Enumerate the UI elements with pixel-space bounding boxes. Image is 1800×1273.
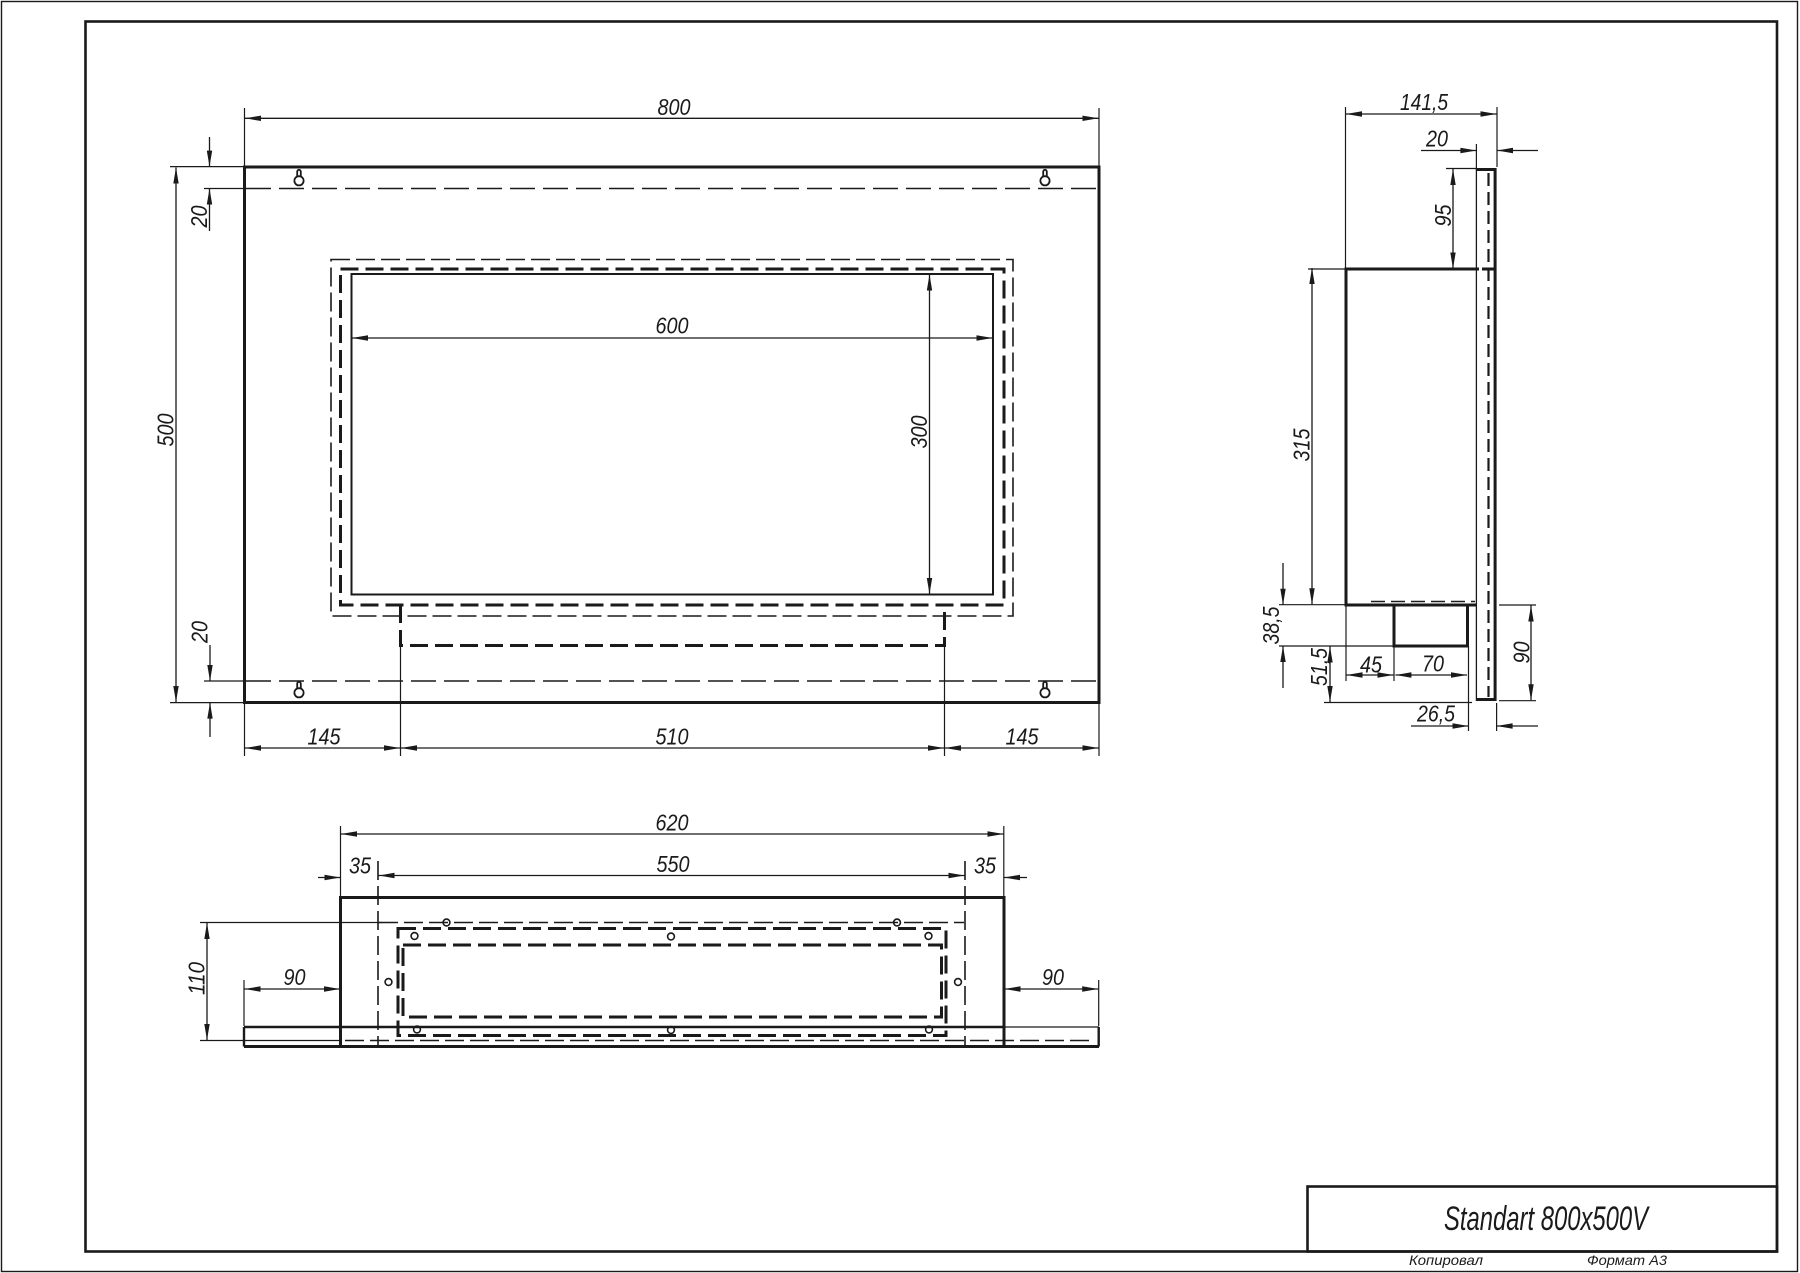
- svg-text:70: 70: [1422, 651, 1444, 677]
- svg-text:95: 95: [1430, 204, 1456, 226]
- svg-text:38,5: 38,5: [1258, 606, 1284, 644]
- svg-text:Standart 800x500V: Standart 800x500V: [1444, 1200, 1650, 1238]
- svg-text:20: 20: [1425, 126, 1448, 152]
- svg-text:500: 500: [153, 413, 179, 446]
- svg-text:90: 90: [284, 964, 306, 990]
- svg-text:510: 510: [656, 724, 689, 750]
- svg-text:51,5: 51,5: [1306, 648, 1332, 686]
- svg-text:145: 145: [1006, 724, 1039, 750]
- svg-text:35: 35: [349, 853, 371, 879]
- svg-text:145: 145: [308, 724, 341, 750]
- svg-text:90: 90: [1042, 964, 1064, 990]
- svg-text:35: 35: [974, 853, 996, 879]
- svg-text:141,5: 141,5: [1400, 89, 1448, 115]
- svg-text:800: 800: [658, 94, 691, 120]
- svg-text:550: 550: [657, 851, 690, 877]
- svg-text:Формат А3: Формат А3: [1587, 1252, 1667, 1268]
- svg-text:Копировал: Копировал: [1409, 1252, 1483, 1268]
- svg-text:300: 300: [906, 415, 932, 448]
- svg-text:620: 620: [656, 810, 689, 836]
- svg-text:600: 600: [656, 313, 689, 339]
- svg-text:315: 315: [1289, 428, 1315, 461]
- svg-text:26,5: 26,5: [1416, 701, 1455, 727]
- svg-text:110: 110: [184, 962, 210, 995]
- svg-text:90: 90: [1509, 641, 1535, 663]
- svg-text:45: 45: [1360, 652, 1382, 678]
- svg-text:20: 20: [186, 205, 212, 228]
- svg-text:20: 20: [187, 621, 213, 644]
